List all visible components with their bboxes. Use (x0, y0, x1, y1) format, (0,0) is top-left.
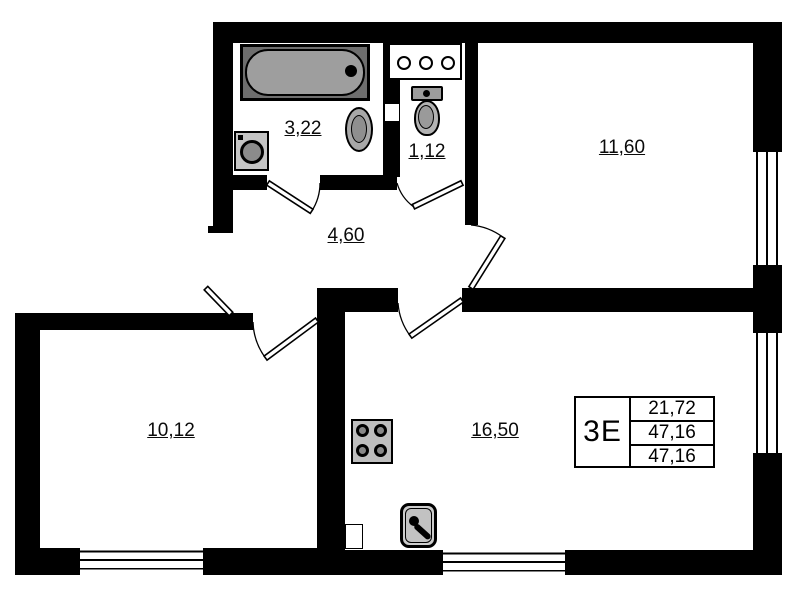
washbasin-icon (345, 107, 373, 152)
stove-icon (351, 419, 393, 464)
toilet-bowl (418, 105, 434, 129)
unit-area-row: 21,72 (631, 398, 713, 422)
bathroom-door (267, 181, 320, 214)
wc-door (397, 181, 463, 209)
stove-burner (356, 444, 369, 457)
area-label-wc: 1,12 (409, 142, 446, 162)
area-label-bedroom: 11,60 (599, 138, 645, 158)
unit-areas: 21,72 47,16 47,16 (631, 398, 713, 466)
window-bedroom (753, 152, 782, 265)
washer-detail (238, 135, 243, 140)
wall-right-top (753, 43, 782, 152)
washing-machine-icon (234, 131, 269, 171)
wall-bottom-10-right (203, 548, 317, 575)
shelf-hole (397, 56, 411, 70)
vent-niche-bath (385, 104, 399, 121)
unit-type-label: 3Е (576, 398, 631, 466)
wall-left-lower (15, 313, 40, 575)
wall-hall-south (345, 288, 398, 312)
stove-burner (374, 444, 387, 457)
bathtub-drain (345, 65, 357, 77)
wall-right-mid (753, 265, 782, 333)
bedroom-door (469, 225, 505, 289)
vent-niche-kitchen (345, 524, 363, 549)
area-label-bathroom: 3,22 (285, 119, 322, 139)
wall-left-upper (213, 43, 233, 233)
window-kitchen-living-south (443, 550, 565, 575)
stove-burner (356, 424, 369, 437)
wall-bath-south-left (233, 175, 267, 190)
wall-left-upper-cap (208, 226, 233, 233)
wall-right-bottom (753, 453, 782, 575)
bathtub-icon (240, 44, 370, 101)
shelf-hole (441, 56, 455, 70)
room-left-door (253, 318, 318, 360)
wc-shelf-icon (388, 43, 462, 80)
area-label-kitchen-living: 16,50 (471, 421, 519, 441)
window-room-left (80, 548, 203, 573)
toilet-icon (414, 100, 440, 136)
toilet-tank-button (423, 90, 430, 97)
wall-bedroom-south (462, 288, 753, 312)
wall-wc-east (465, 43, 478, 225)
unit-area-row: 47,16 (631, 422, 713, 446)
wall-room-left-north (15, 313, 253, 330)
toilet-tank-icon (411, 86, 443, 101)
unit-info-table: 3Е 21,72 47,16 47,16 (574, 396, 715, 468)
wall-bottom-right (565, 550, 753, 575)
shelf-hole (419, 56, 433, 70)
wall-bottom-mid (345, 550, 443, 575)
stove-burner (374, 424, 387, 437)
washer-drum (240, 140, 264, 164)
washbasin-bowl (351, 115, 367, 143)
area-label-room-left: 10,12 (147, 421, 195, 441)
kitchen-living-door (398, 298, 463, 338)
wall-bath-south-right (320, 175, 397, 190)
floor-plan: 3,22 1,12 11,60 4,60 10,12 16,50 3Е 21,7… (0, 0, 799, 600)
unit-area-row: 47,16 (631, 446, 713, 468)
area-label-hallway: 4,60 (328, 226, 365, 246)
wall-top (213, 22, 782, 43)
window-kitchen-living-east (753, 333, 782, 453)
wall-divider-vertical (317, 288, 345, 575)
entrance-door (204, 286, 233, 315)
kitchen-sink-icon (400, 503, 437, 548)
